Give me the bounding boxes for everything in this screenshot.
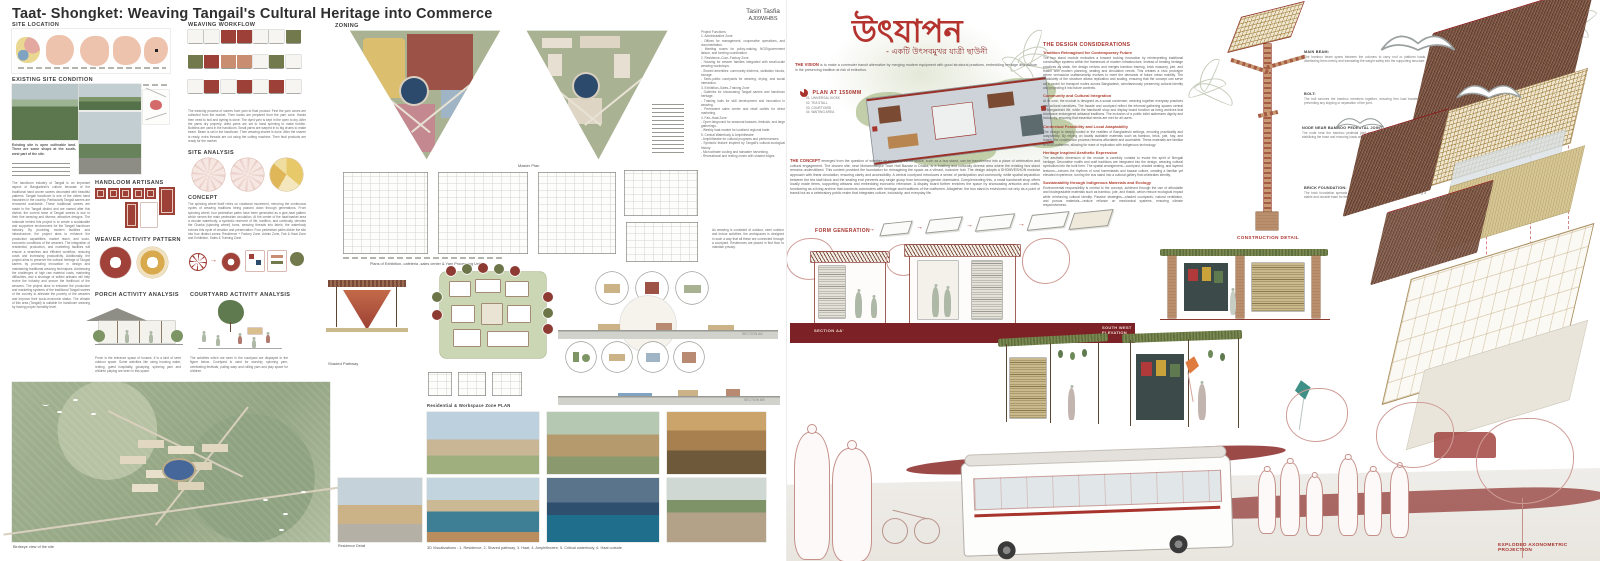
section-detail-circle: [638, 342, 668, 372]
module-roof: [905, 245, 1020, 256]
map-labels-line: [18, 67, 166, 69]
room-block: [506, 282, 528, 296]
section-detail-circle: [674, 342, 704, 372]
room-block: [452, 306, 474, 322]
dc-item-title: Community and Cultural Integration: [1043, 93, 1183, 98]
bicycle-sketch: [882, 498, 940, 546]
zone-fair-haat: [389, 104, 435, 152]
weaver-activity-clock-weekend: [137, 247, 168, 278]
section-building: [598, 324, 620, 330]
callout-title: BOLT:: [1304, 92, 1426, 96]
visualizations-caption: 3D Visualizations : 1. Residence, 2. Sha…: [427, 546, 727, 550]
render-residence: [427, 412, 539, 474]
render-haat-outside: [667, 478, 766, 542]
callout-body: The bolt secures the bamboo members toge…: [1304, 97, 1426, 105]
zoning-master-plan: MASTER PLAN: [345, 28, 505, 162]
form-step-box: [1027, 211, 1070, 231]
heading-weaver-activity: WEAVER ACTIVITY PATTERN: [95, 237, 181, 243]
section-waterbody: [618, 393, 652, 396]
zone-dot: [249, 254, 254, 259]
callout-bolt: BOLT: The bolt secures the bamboo member…: [1304, 92, 1426, 105]
artisan-icon-tall: [125, 202, 138, 228]
plan-badge: [462, 264, 472, 274]
artisan-icon-tile: [120, 188, 131, 199]
workflow-step-tile: [204, 30, 219, 43]
union-map: [113, 36, 141, 65]
section-detail-circle: [566, 342, 596, 372]
workflow-step-tile: [237, 80, 252, 93]
master-plan-inmap-label: MASTER PLAN: [367, 136, 398, 140]
person-silhouette: [932, 287, 939, 317]
building-block: [542, 38, 572, 48]
birdseye-render: [12, 382, 330, 542]
dc-item-body: Environmental responsibility is central …: [1043, 186, 1183, 207]
concept-diagrams: →: [188, 246, 306, 290]
building-block: [614, 54, 630, 78]
poster: [1170, 364, 1180, 377]
road: [3, 486, 340, 536]
tree-trunk: [230, 322, 231, 332]
heading-site-location: SITE LOCATION: [12, 22, 59, 28]
section-bb-label: SECTION BB': [744, 398, 765, 402]
zone-dot: [256, 260, 261, 265]
room-block: [488, 332, 528, 346]
spinning-wheel-icon: [190, 254, 206, 270]
floor-plan-3: [538, 172, 616, 254]
heading-courtyard-activity: COURTYARD ACTIVITY ANALYSIS: [190, 292, 290, 298]
bird-icon: [1378, 20, 1458, 60]
plan-shop: [987, 91, 1015, 108]
poster: [1156, 360, 1166, 376]
pond: [164, 460, 194, 480]
arrow-icon: →: [210, 257, 217, 264]
plan-badge: [494, 264, 504, 274]
dc-item-title: Tradition Reimagined for Contemporary Fu…: [1043, 50, 1183, 55]
porch-wall: [99, 321, 175, 343]
brick-pier: [1312, 256, 1320, 318]
form-generation-label: FORM GENERATION: [815, 228, 870, 234]
workflow-step-tile: [237, 30, 252, 43]
building-block: [548, 54, 562, 76]
plan-badge: [510, 266, 520, 276]
unit-plan-3: [492, 372, 522, 396]
concept-label: THE CONCEPT: [790, 158, 820, 163]
plan-seating: [887, 133, 918, 149]
upazila-map: [80, 36, 109, 66]
pavilion-post: [1130, 340, 1131, 426]
crowd-figure: [1258, 470, 1276, 534]
left-board-title: Taat- Shongket: Weaving Tangail's Cultur…: [12, 6, 572, 22]
floor-plan-1: [343, 172, 428, 254]
room-block: [508, 306, 530, 322]
bush: [171, 330, 183, 342]
waterbody-diagram: [222, 253, 240, 271]
pathway-interior-form: [342, 290, 392, 330]
exploded-axonometric-caption: EXPLODED AXONOMETRIC PROJECTION: [1498, 543, 1598, 553]
dc-item-body: The aesthetic dimension of the module is…: [1043, 156, 1183, 177]
porch-post: [139, 321, 140, 343]
zoning-diagram-card: [246, 251, 264, 271]
bus-wheel: [997, 541, 1016, 560]
concept-paragraph: THE CONCEPT emerged from the question of…: [790, 158, 1040, 196]
dc-item-body: At its core, the module is designed as a…: [1043, 99, 1183, 120]
site-photo-road: [79, 112, 141, 174]
concept-text: The spinning wheel itself relies on rota…: [188, 202, 306, 241]
porch-caption: Porch is the entrance space of houses. I…: [95, 356, 181, 373]
hanging-plants: [1058, 350, 1063, 358]
workflow-step-tile: [286, 55, 301, 68]
form-step-box: [879, 221, 913, 237]
left-board: Taat- Shongket: Weaving Tangail's Cultur…: [0, 0, 786, 561]
brick-pier: [1236, 256, 1244, 318]
district-map: [46, 35, 74, 65]
room-block: [454, 330, 480, 346]
person-silhouette: [1230, 291, 1236, 315]
crowd-figure: [1306, 476, 1323, 536]
poster: [1202, 267, 1211, 281]
site-data-table: [12, 160, 70, 176]
bangladesh-map: [16, 37, 40, 63]
render-haat-interior: [667, 412, 766, 474]
workflow-step-tile: [253, 55, 268, 68]
author-block: Tasin Tasfia AJ09WHBS: [738, 8, 788, 22]
vision-label: THE VISION: [795, 62, 819, 67]
poster: [1214, 271, 1223, 283]
site-photo-meadow: [79, 84, 141, 110]
person-sketch: [252, 340, 256, 348]
room-block: [476, 280, 500, 292]
workflow-step-tile: [188, 80, 203, 93]
zone-bar: [271, 261, 283, 264]
map-legend-line: [143, 84, 169, 86]
construction-detail-label: CONSTRUCTION DETAIL: [1237, 235, 1299, 240]
board-subtitle-bengali: - একটি উৎসবমুখর যাত্রী ছাউনী: [886, 46, 987, 59]
detail-building: [645, 282, 659, 294]
dc-item-title: Sustainability through Indigenous Materi…: [1043, 180, 1183, 185]
porch-post: [117, 321, 118, 343]
scene-pavilions: [998, 332, 1248, 436]
heading-porch-activity: PORCH ACTIVITY ANALYSIS: [95, 292, 179, 298]
porch-sketch: [95, 300, 183, 352]
elevation-module-2: [910, 245, 1015, 325]
pathway-base: [326, 328, 408, 332]
bush: [93, 330, 105, 342]
foreground-figure: [832, 448, 872, 561]
section-building: [656, 323, 672, 330]
person-sketch: [202, 334, 206, 342]
tree-sketch: [1376, 402, 1454, 468]
person-silhouette: [855, 292, 862, 318]
zone-bar: [271, 255, 283, 258]
dc-item-body: The design is deeply rooted in the reali…: [1043, 130, 1183, 147]
central-waterbody: [401, 78, 427, 104]
plan-badge: [543, 308, 553, 318]
workflow-step-tile: [253, 80, 268, 93]
workflow-step-tile: [221, 55, 236, 68]
workflow-step-tile: [269, 30, 284, 43]
plan-washroom: [1020, 114, 1044, 137]
road-line: [146, 88, 167, 98]
section-building: [678, 390, 698, 396]
dc-item-body: The bus stand module embodies a forward …: [1043, 56, 1183, 90]
site-context-map: [143, 90, 169, 124]
pavilion-roof: [998, 333, 1108, 347]
module-mesh-wall: [972, 261, 1002, 319]
woven-screen: [1252, 263, 1304, 311]
heading-weaving-workflow: WEAVING WORKFLOW: [188, 22, 255, 28]
detail-trees: [573, 352, 579, 362]
bamboo-joint-axonometric: [1228, 12, 1308, 232]
plan-kiosk: [878, 105, 902, 124]
tree-sketch: [1022, 238, 1070, 284]
ground-line: [1160, 319, 1330, 320]
ground-line: [198, 348, 282, 349]
pavilion-post: [1050, 343, 1051, 423]
central-waterbody: [574, 74, 598, 98]
birdseye-caption: Birdseye view of the site: [13, 545, 54, 549]
site-map: [144, 37, 168, 64]
workflow-step-tile: [253, 30, 268, 43]
project-functions-text: Project Functions: 1. Administrative Zon…: [701, 30, 785, 222]
detail-building: [684, 285, 701, 293]
site-marker: [155, 49, 158, 52]
building-block: [580, 36, 620, 48]
heading-site-analysis: SITE ANALYSIS: [188, 150, 234, 156]
existing-site-note: Existing site is open cultivable land. T…: [12, 143, 76, 156]
woven-screen: [1010, 358, 1046, 418]
artisan-icon-tile: [145, 188, 156, 199]
detail-building: [682, 352, 696, 363]
heading-handloom-artisans: HANDLOOM ARTISANS: [95, 180, 164, 186]
workflow-step-tile: [269, 80, 284, 93]
bird-icon: [1454, 72, 1524, 106]
module-mesh-wall: [819, 266, 845, 318]
display-board: [1136, 354, 1184, 420]
workflow-step-tile: [204, 80, 219, 93]
plan-badge: [478, 263, 488, 273]
person-silhouette: [944, 289, 951, 317]
person-silhouette: [871, 298, 877, 318]
tree-canopy: [218, 300, 244, 324]
shaded-pathway-caption: Shaded Pathway: [328, 361, 358, 366]
plan-caption-line: [343, 257, 503, 259]
zone-circle: [290, 252, 304, 266]
courtyard-block: [482, 304, 502, 324]
section-aa-label: SECTION AA': [742, 332, 763, 336]
right-board: উৎযাপন - একটি উৎসবমুখর যাত্রী ছাউনী THE …: [786, 0, 1600, 561]
master-plan-inmap-label: MASTER PLAN: [546, 136, 577, 140]
residence-detail-render: [338, 478, 422, 542]
heading-existing-site: EXISTING SITE CONDITION: [12, 77, 93, 83]
construction-detail-drawing: [1160, 243, 1330, 331]
workflow-step-tile: [286, 30, 301, 43]
workflow-step-tile: [221, 30, 236, 43]
workflow-step-tile: [204, 55, 219, 68]
zoning-legend: [652, 103, 684, 153]
author-id: AJ09WHBS: [738, 16, 788, 22]
pathway-roof: [328, 280, 406, 287]
plan-badge: [543, 292, 553, 302]
bus-wheel: [1169, 535, 1188, 554]
residence-detail-caption: Residence Detail: [338, 544, 365, 548]
brick-pier: [1168, 256, 1176, 318]
section-detail-circle: [676, 272, 708, 304]
foreground-figure: [794, 432, 830, 560]
brick-foundation-block: [1256, 212, 1278, 230]
pathway-post: [396, 287, 397, 327]
artisan-icon-tile: [95, 188, 106, 199]
person-sketch: [238, 336, 242, 344]
floor-plan-2: [438, 172, 528, 254]
section-building: [708, 325, 734, 330]
residential-plan-caption: Residential & Workspace Zone PLAN: [427, 403, 511, 408]
workflow-step-tile: [269, 55, 284, 68]
zoning-diagram-card: [268, 251, 286, 271]
zone-admin: [363, 38, 405, 98]
ground-line: [95, 344, 183, 345]
weaving-workflow-grid: [188, 30, 306, 106]
plan-courtyard: [932, 102, 976, 139]
weaving-mat: [248, 328, 262, 334]
dc-item-title: Heritage Inspired Aesthetic Expression: [1043, 150, 1183, 155]
birds: [42, 402, 49, 406]
weaver-activity-clock-weekday: [100, 247, 131, 278]
detail-trees: [582, 354, 590, 362]
form-step-box-final: [1068, 209, 1113, 230]
pavilion-post: [1006, 344, 1007, 422]
plan-badge: [446, 266, 456, 276]
unit-plan-1: [428, 372, 452, 396]
elevation-module-1: [815, 252, 885, 325]
unit-plan-2: [458, 372, 486, 396]
bus-sketch: [960, 441, 1240, 561]
person-silhouette: [1198, 384, 1206, 420]
arrow-icon: →: [868, 226, 875, 233]
arrow-icon: →: [966, 222, 973, 229]
pavilion-roof: [1122, 330, 1242, 343]
workflow-step-tile: [237, 55, 252, 68]
section-detail-circle: [596, 272, 628, 304]
porch-roof: [86, 308, 148, 321]
bicycle-wheel: [882, 518, 908, 544]
render-amphitheatre: [547, 478, 659, 542]
site-analysis-diagram-wind: [231, 158, 264, 191]
courtyard-caption: The activities which are seen in the cou…: [190, 356, 288, 373]
person-sketch: [125, 333, 129, 343]
render-waterbody: [427, 478, 539, 542]
heading-zoning: ZONING: [335, 23, 359, 29]
room-block: [450, 282, 470, 296]
workflow-row-3: [188, 80, 306, 105]
residence-note-text: As weaving is consisted of outdoor, semi…: [712, 228, 784, 249]
bird-icon: [1334, 108, 1386, 134]
workflow-step-tile: [188, 55, 203, 68]
arrow-icon: →: [1018, 221, 1025, 228]
building-cluster: [138, 440, 164, 448]
artisan-sketch-card: [141, 203, 157, 227]
design-considerations-heading: THE DESIGN CONSIDERATIONS: [1043, 42, 1183, 48]
form-step-box: [925, 216, 963, 233]
shaded-pathway-drawing: [326, 272, 408, 358]
site-photo-field: [12, 84, 78, 140]
section-aa-label: SECTION AA': [814, 328, 844, 333]
workflow-step-tile: [188, 30, 203, 43]
poster: [1188, 269, 1198, 281]
detail-building: [604, 284, 620, 293]
artisan-icon-tile: [108, 188, 119, 199]
artisan-icon-tall: [159, 187, 175, 215]
master-plan-caption: Master Plan: [518, 163, 539, 168]
road-line: [145, 113, 166, 121]
dc-item-title: Contextual Feasibility and Local Adaptab…: [1043, 124, 1183, 129]
plan-badge: [432, 310, 442, 320]
plan-badge: [543, 324, 553, 334]
crowd-figure: [1338, 458, 1358, 536]
porch-post: [161, 321, 162, 343]
form-step-box: [975, 213, 1015, 231]
section-building: [726, 389, 740, 396]
plan-label: PLAN AT 1550MM: [812, 90, 861, 96]
poster: [1141, 362, 1152, 376]
person-sketch: [216, 338, 220, 346]
author-name: Tasin Tasfia: [738, 8, 788, 15]
workflow-row-2: [188, 55, 306, 80]
workflow-step-tile: [221, 80, 236, 93]
heading-concept: CONCEPT: [188, 195, 218, 201]
pavilion-post: [1238, 338, 1239, 428]
person-sketch: [266, 335, 270, 343]
presentation-boards: Taat- Shongket: Weaving Tangail's Cultur…: [0, 0, 1600, 561]
pathway-post: [336, 287, 337, 327]
crowd-figure: [1390, 466, 1409, 538]
render-shared-pathway: [547, 412, 659, 474]
tree-sketch: [1286, 388, 1348, 442]
detail-building: [646, 353, 660, 362]
courtyard-sketch: [190, 300, 288, 352]
bamboo-beam: [1266, 55, 1306, 70]
artisan-icon-tile: [133, 188, 144, 199]
site-location-map-strip: [12, 29, 170, 73]
detail-building: [609, 354, 625, 361]
handloom-artisans-strip: [95, 187, 181, 231]
crowd-figure: [1364, 470, 1382, 536]
site-analysis-diagram-noise: [270, 158, 303, 191]
weaving-workflow-caption: The weaving process of sarees from yarn …: [188, 109, 306, 143]
concept-text: emerged from the question of whether an …: [790, 159, 1040, 195]
workflow-row-1: [188, 30, 306, 55]
workflow-step-tile: [286, 80, 301, 93]
site-area-highlight: [150, 100, 162, 110]
bicycle-wheel: [914, 518, 940, 544]
module-roof: [811, 252, 889, 262]
green-roof: [1160, 249, 1328, 256]
vision-text: is to make a commuter transit alternativ…: [795, 63, 1037, 72]
zoning-building-plan: MASTER PLAN: [522, 28, 672, 162]
project-intro-text: The handloom industry of Tangail is an i…: [12, 181, 90, 377]
residential-zone-plan: [440, 272, 546, 358]
design-considerations: THE DESIGN CONSIDERATIONS Tradition Reim…: [1043, 42, 1183, 211]
plan-badge: [432, 292, 442, 302]
vision-paragraph: THE VISION is to make a commuter transit…: [795, 62, 1037, 73]
plans-row-caption: Plans of Exhibition- cafeteria -sales ce…: [370, 262, 610, 266]
arrow-icon: →: [916, 224, 923, 231]
floor-plan-5: [626, 222, 698, 262]
plan-marker: [872, 126, 878, 132]
person-silhouette: [1068, 388, 1075, 420]
pavilion-post: [1098, 342, 1099, 424]
display-board: [1184, 263, 1228, 311]
site-analysis-diagram-sun: [192, 158, 225, 191]
